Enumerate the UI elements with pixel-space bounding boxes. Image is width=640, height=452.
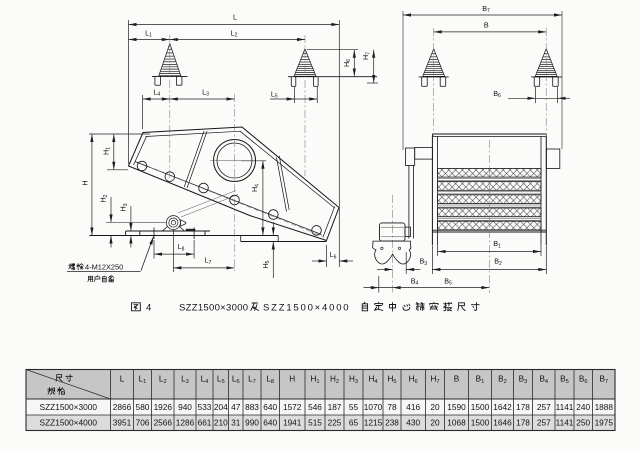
svg-text:SZZ1500×3000: SZZ1500×3000 [179,303,248,314]
svg-text:546: 546 [308,402,322,412]
svg-text:533: 533 [198,402,212,412]
svg-text:4-M12X250: 4-M12X250 [85,263,123,272]
svg-text:1286: 1286 [176,418,195,428]
svg-text:2566: 2566 [154,418,173,428]
svg-text:1572: 1572 [283,402,302,412]
svg-text:1590: 1590 [447,402,466,412]
svg-text:1646: 1646 [493,418,512,428]
svg-text:B: B [484,20,489,29]
svg-text:1926: 1926 [154,402,173,412]
svg-text:178: 178 [516,402,530,412]
svg-text:L: L [120,375,125,384]
svg-text:31: 31 [231,418,241,428]
svg-text:1068: 1068 [447,418,466,428]
svg-text:L: L [233,13,237,22]
svg-text:SZZ1500×3000: SZZ1500×3000 [40,402,98,412]
svg-text:1141: 1141 [556,418,574,428]
svg-text:187: 187 [328,402,342,412]
svg-text:H: H [289,375,295,384]
svg-text:225: 225 [328,418,342,428]
svg-text:257: 257 [537,402,551,412]
svg-text:990: 990 [245,418,259,428]
svg-text:257: 257 [537,418,551,428]
svg-text:1888: 1888 [595,402,614,412]
svg-text:3951: 3951 [113,418,132,428]
svg-text:H: H [80,180,89,185]
svg-text:640: 640 [263,418,277,428]
svg-text:78: 78 [387,402,397,412]
svg-text:2866: 2866 [113,402,132,412]
svg-text:SZZ1500×4000: SZZ1500×4000 [263,303,350,314]
svg-text:47: 47 [231,402,241,412]
svg-text:940: 940 [178,402,192,412]
svg-text:210: 210 [214,418,228,428]
svg-text:580: 580 [136,402,150,412]
svg-text:SZZ1500×4000: SZZ1500×4000 [40,418,98,428]
svg-text:20: 20 [430,418,440,428]
svg-text:706: 706 [136,418,150,428]
svg-text:1215: 1215 [364,418,383,428]
svg-text:B: B [454,375,460,384]
svg-text:416: 416 [406,402,420,412]
svg-text:1975: 1975 [595,418,614,428]
svg-text:1500: 1500 [471,418,490,428]
svg-text:515: 515 [308,418,322,428]
svg-text:55: 55 [349,402,359,412]
svg-text:65: 65 [349,418,359,428]
svg-text:204: 204 [214,402,228,412]
svg-text:1642: 1642 [493,402,512,412]
svg-text:178: 178 [516,418,530,428]
svg-text:1070: 1070 [364,402,383,412]
svg-text:640: 640 [263,402,277,412]
svg-text:238: 238 [385,418,399,428]
svg-text:20: 20 [430,402,440,412]
svg-text:240: 240 [576,402,590,412]
svg-text:1141: 1141 [556,402,574,412]
svg-text:1500: 1500 [471,402,490,412]
svg-text:250: 250 [576,418,590,428]
svg-text:430: 430 [406,418,420,428]
svg-text:1941: 1941 [283,418,302,428]
svg-text:4: 4 [146,303,151,314]
svg-text:883: 883 [245,402,259,412]
svg-text:661: 661 [198,418,212,428]
